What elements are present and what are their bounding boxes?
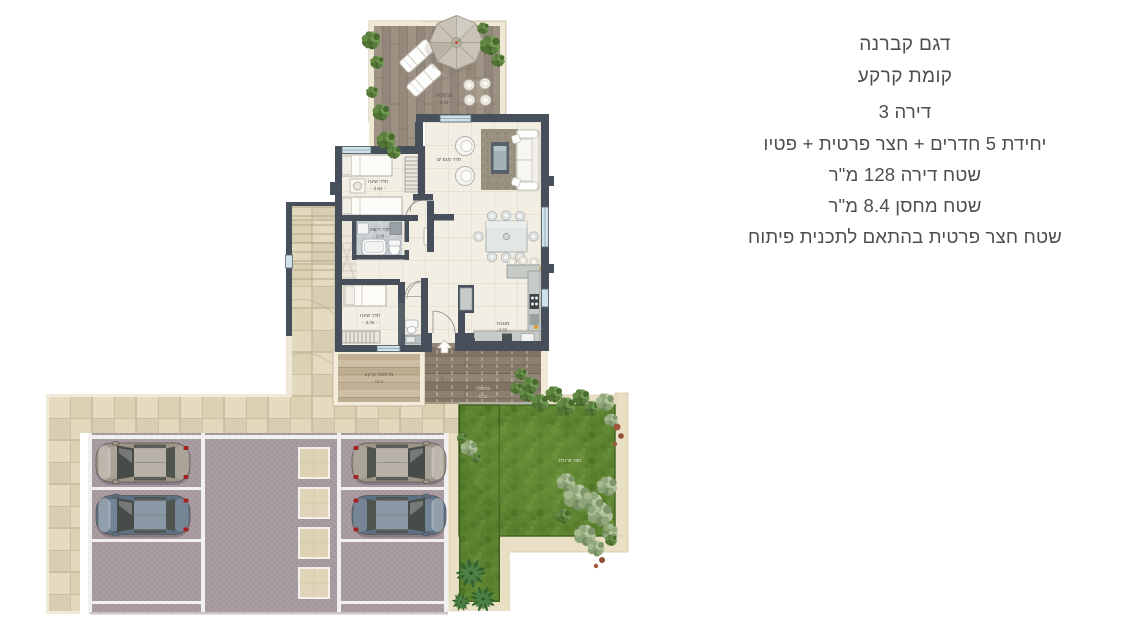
svg-text:מטבח: מטבח xyxy=(497,321,511,327)
svg-text:- 2.06 -: - 2.06 - xyxy=(373,234,387,239)
svg-text:מרפסת קרקע: מרפסת קרקע xyxy=(365,372,394,378)
svg-text:מרפסת: מרפסת xyxy=(435,93,452,99)
svg-text:- 3.64 -: - 3.64 - xyxy=(371,186,386,191)
svg-text:חדר שינה: חדר שינה xyxy=(360,313,380,319)
svg-text:חדר שינה: חדר שינה xyxy=(368,179,388,185)
svg-text:- 15.4 -: - 15.4 - xyxy=(372,379,387,384)
svg-text:- 3.06 -: - 3.06 - xyxy=(363,320,378,325)
svg-text:- 5.29 -: - 5.29 - xyxy=(437,100,452,105)
svg-text:חדר רחצה: חדר רחצה xyxy=(370,228,391,233)
svg-text:- 5.04 -: - 5.04 - xyxy=(476,394,491,399)
svg-text:חדר מגורים: חדר מגורים xyxy=(437,157,461,163)
svg-text:- 3.65 -: - 3.65 - xyxy=(496,328,510,333)
svg-text:חצר פרטית: חצר פרטית xyxy=(559,459,582,464)
svg-text:פרגולה: פרגולה xyxy=(476,385,491,392)
